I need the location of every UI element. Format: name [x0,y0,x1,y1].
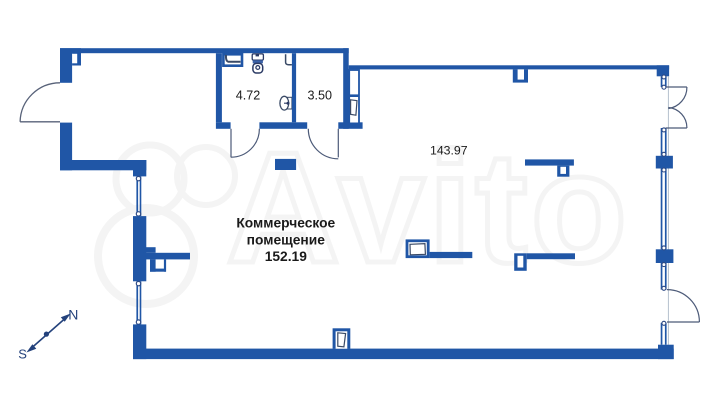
svg-text:S: S [18,347,27,362]
svg-text:помещение: помещение [247,233,326,248]
svg-text:Avito: Avito [226,120,630,296]
svg-text:3.50: 3.50 [308,89,333,103]
svg-text:152.19: 152.19 [265,249,308,264]
svg-text:143.97: 143.97 [430,143,468,157]
svg-text:N: N [68,307,78,323]
svg-text:Коммерческое: Коммерческое [236,215,335,230]
svg-text:4.72: 4.72 [236,89,261,103]
